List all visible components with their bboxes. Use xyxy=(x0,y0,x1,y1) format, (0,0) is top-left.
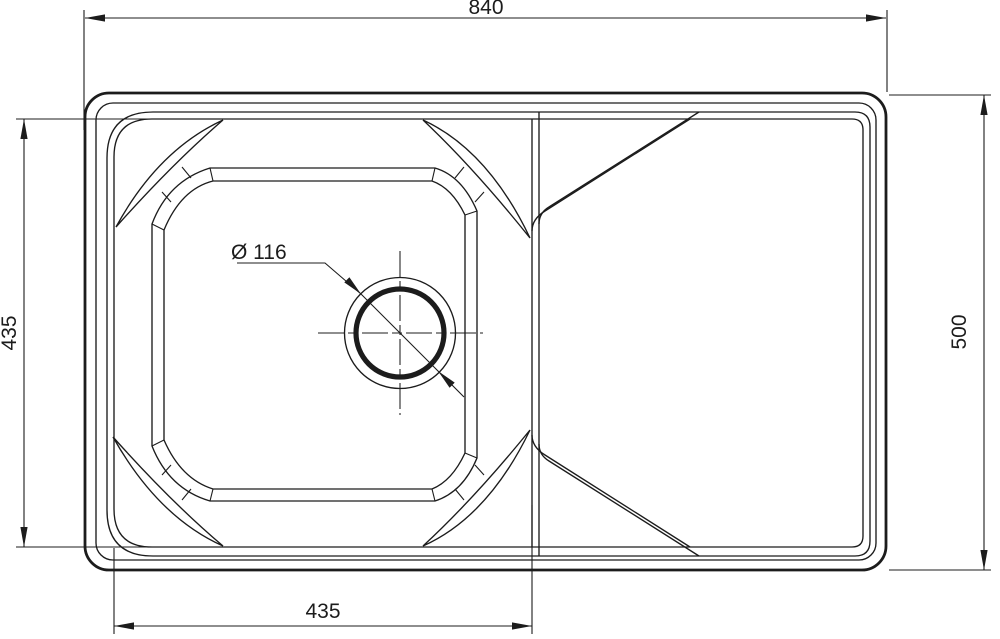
corner-blade-bottom-left xyxy=(113,437,223,546)
arrowhead xyxy=(512,622,532,629)
arrowhead xyxy=(114,622,134,629)
drainboard-slope-bottom-outer xyxy=(539,444,699,556)
bowl-drainboard-junction xyxy=(532,112,699,556)
callout-leader-line xyxy=(237,263,361,294)
drain-diameter-label: Ø 116 xyxy=(231,241,287,264)
overall-width-label: 840 xyxy=(468,0,503,19)
facet-tick xyxy=(455,167,464,178)
facet-tick xyxy=(210,489,213,501)
facet-tick xyxy=(455,489,464,500)
corner-blade-top-left xyxy=(116,120,223,227)
facet-tick xyxy=(152,440,164,446)
dimension-overall-depth: 500 xyxy=(889,95,991,570)
facet-tick xyxy=(432,168,435,181)
arrowhead xyxy=(980,95,987,115)
facet-tick xyxy=(210,168,213,181)
arrowhead xyxy=(344,277,361,294)
overall-depth-label: 500 xyxy=(948,314,971,349)
drainboard-slope-top-inner xyxy=(532,119,690,231)
arrowhead xyxy=(20,119,27,139)
bowl-depth-label: 435 xyxy=(0,315,21,350)
facet-tick xyxy=(475,192,484,202)
facet-tick xyxy=(182,167,191,178)
facet-tick xyxy=(152,224,164,230)
bowl-floor-inner-edge xyxy=(164,181,465,489)
arrowhead xyxy=(20,527,27,547)
facet-tick xyxy=(465,453,477,458)
facet-tick xyxy=(465,211,477,215)
facet-tick xyxy=(432,489,435,501)
facet-tick xyxy=(475,465,484,475)
drainboard-slope-bottom-inner xyxy=(532,435,690,547)
arrowhead xyxy=(866,14,886,21)
drain-diameter-callout: Ø 116 xyxy=(231,241,464,397)
bowl-floor xyxy=(152,168,477,501)
arrowhead xyxy=(85,14,105,21)
drawing-page: Ø 116 840 500 435 435 xyxy=(0,0,1000,639)
bowl-width-label: 435 xyxy=(305,600,340,623)
dimension-overall-width: 840 xyxy=(84,0,887,130)
bowl-floor-outer-edge xyxy=(152,168,477,501)
sink-technical-drawing: Ø 116 840 500 435 435 xyxy=(0,0,1000,639)
arrowhead xyxy=(980,550,987,570)
